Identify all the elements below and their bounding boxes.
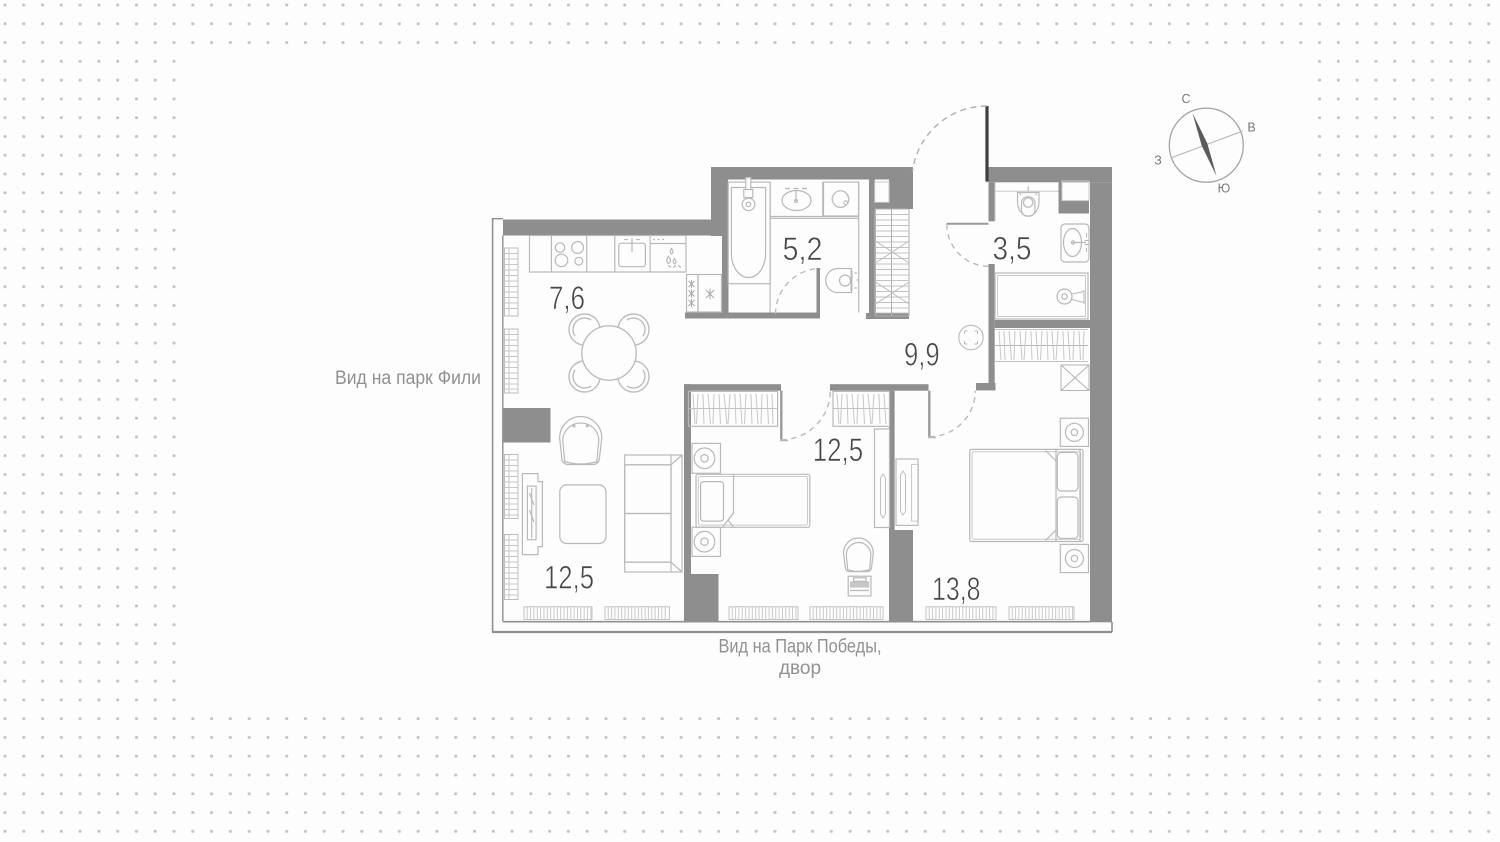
svg-text:13,8: 13,8	[932, 571, 981, 607]
svg-text:9,9: 9,9	[904, 336, 940, 372]
svg-text:5,2: 5,2	[783, 231, 823, 267]
svg-text:12,5: 12,5	[813, 432, 864, 468]
svg-text:З: З	[1154, 154, 1162, 168]
svg-text:Ю: Ю	[1218, 182, 1231, 196]
svg-text:Вид на парк Фили: Вид на парк Фили	[335, 368, 481, 389]
svg-text:двор: двор	[779, 658, 821, 679]
svg-text:3,5: 3,5	[993, 231, 1032, 267]
svg-text:12,5: 12,5	[544, 559, 594, 595]
svg-text:В: В	[1247, 121, 1255, 135]
svg-text:7,6: 7,6	[549, 280, 585, 316]
svg-text:Вид на Парк Победы,: Вид на Парк Победы,	[719, 637, 882, 658]
svg-text:С: С	[1181, 92, 1190, 106]
